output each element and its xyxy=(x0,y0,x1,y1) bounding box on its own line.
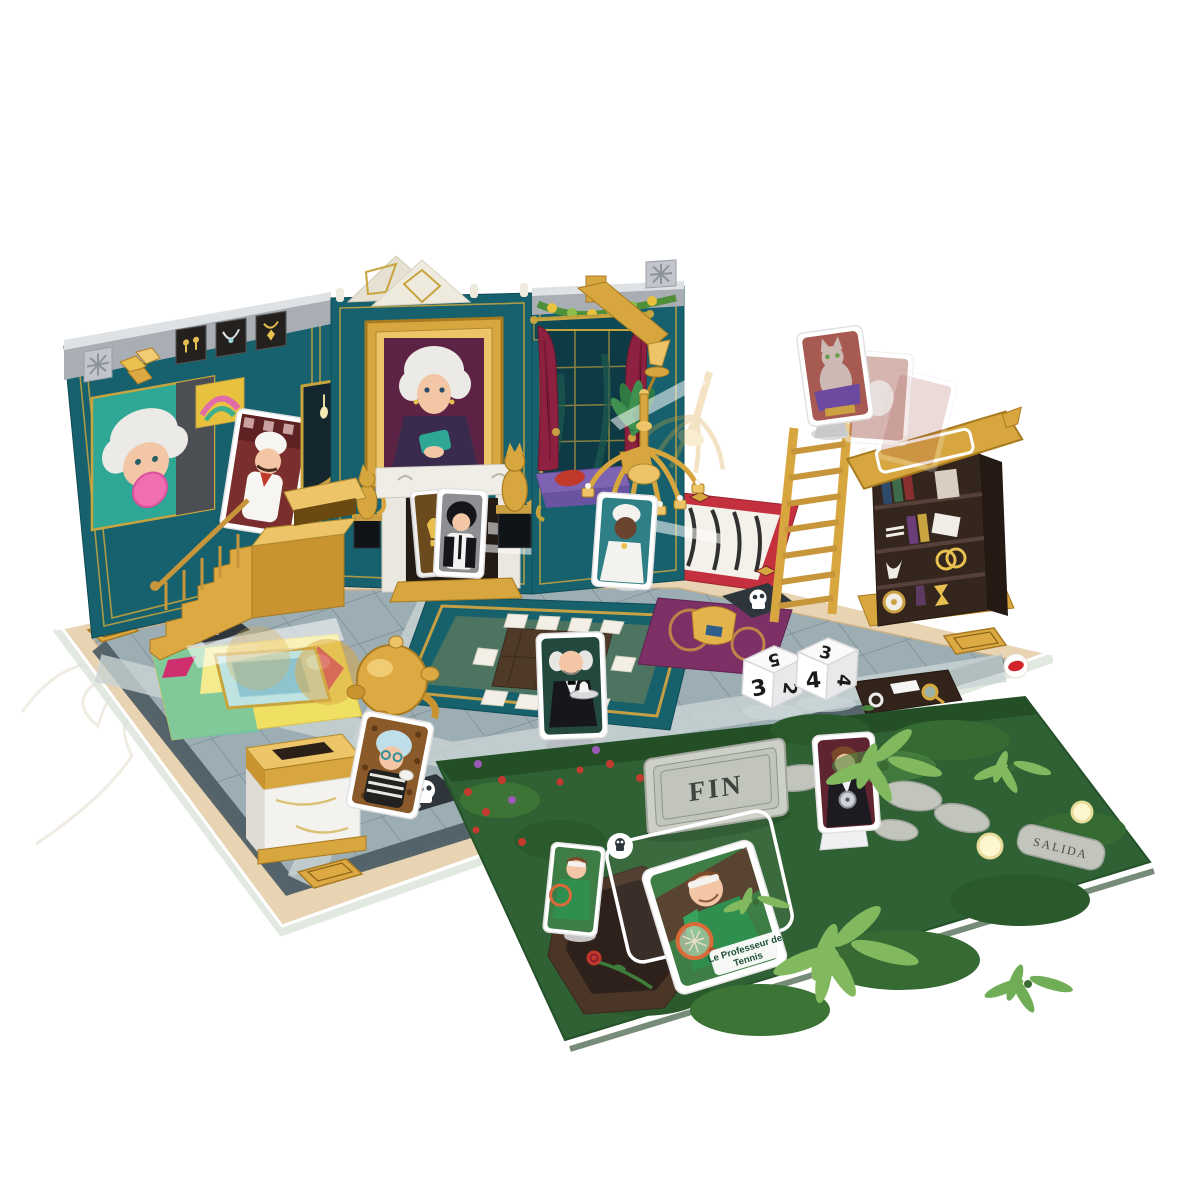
tennis-standee xyxy=(543,842,606,942)
brand-logo xyxy=(1004,654,1028,678)
path-light xyxy=(978,834,1002,858)
product-photo-board-game: 5 3 2 3 4 4 SALIDA xyxy=(0,0,1200,1200)
armchair-art xyxy=(692,606,736,644)
magnifier-icon xyxy=(923,685,937,699)
path-light xyxy=(1072,802,1092,822)
fireplace-card-front xyxy=(433,488,488,578)
vent-grille xyxy=(646,260,676,288)
mace-ghost xyxy=(226,626,290,690)
grand-portrait xyxy=(366,318,502,488)
vent-grille xyxy=(84,347,112,382)
scene: 5 3 2 3 4 4 SALIDA xyxy=(0,0,1200,1200)
die-right-front-value: 4 xyxy=(804,668,822,694)
